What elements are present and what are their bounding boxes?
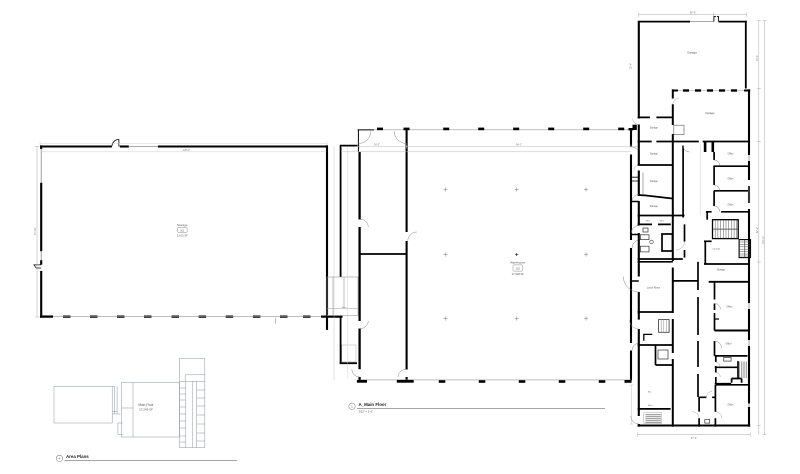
svg-text:101: 101 (180, 229, 185, 232)
svg-text:36'-8": 36'-8" (690, 11, 697, 15)
svg-text:Vest.: Vest. (342, 306, 347, 309)
svg-text:17,249 SF: 17,249 SF (139, 408, 153, 412)
svg-text:Area Plans: Area Plans (66, 454, 89, 459)
svg-text:Garage: Garage (705, 111, 715, 115)
svg-text:24'-2": 24'-2" (374, 143, 380, 146)
svg-text:Corridor: Corridor (712, 248, 720, 251)
svg-text:Elec.: Elec. (648, 392, 653, 394)
svg-text:WR 2: WR 2 (660, 220, 665, 222)
svg-text:Storage: Storage (177, 223, 188, 227)
svg-text:Office: Office (728, 205, 735, 207)
svg-text:Lunch Room: Lunch Room (647, 288, 660, 290)
svg-text:Storage: Storage (650, 180, 659, 183)
svg-text:134'-11": 134'-11" (762, 236, 765, 245)
svg-text:Main Floor: Main Floor (138, 403, 154, 407)
svg-text:Mech.: Mech. (648, 405, 654, 407)
svg-text:WR 1: WR 1 (646, 220, 651, 222)
svg-text:128'-0": 128'-0" (183, 149, 191, 152)
svg-text:Storage: Storage (650, 126, 659, 129)
svg-text:Storage: Storage (717, 269, 726, 272)
svg-text:Office: Office (728, 154, 735, 156)
svg-text:102: 102 (516, 267, 521, 270)
svg-text:Warehouse: Warehouse (510, 261, 526, 265)
svg-text:Office: Office (728, 404, 735, 406)
svg-text:17,048 SF: 17,048 SF (512, 272, 525, 276)
svg-text:Garage: Garage (687, 51, 697, 55)
svg-text:37'-4": 37'-4" (691, 436, 698, 440)
svg-text:3/32" = 1'-0": 3/32" = 1'-0" (359, 410, 374, 414)
svg-text:87'-2": 87'-2" (756, 227, 759, 233)
svg-text:Storage: Storage (650, 153, 659, 156)
svg-text:57'-10": 57'-10" (33, 227, 37, 235)
svg-text:A_Main Floor: A_Main Floor (359, 402, 387, 407)
svg-text:5,013 SF: 5,013 SF (177, 234, 188, 238)
svg-text:Office: Office (728, 179, 735, 181)
svg-text:Office: Office (727, 307, 734, 309)
svg-text:22'-4": 22'-4" (630, 63, 633, 69)
svg-text:Office: Office (726, 344, 733, 346)
svg-text:Storage: Storage (650, 205, 659, 208)
svg-text:94'-1": 94'-1" (516, 143, 522, 146)
svg-text:22'-4": 22'-4" (756, 55, 759, 61)
